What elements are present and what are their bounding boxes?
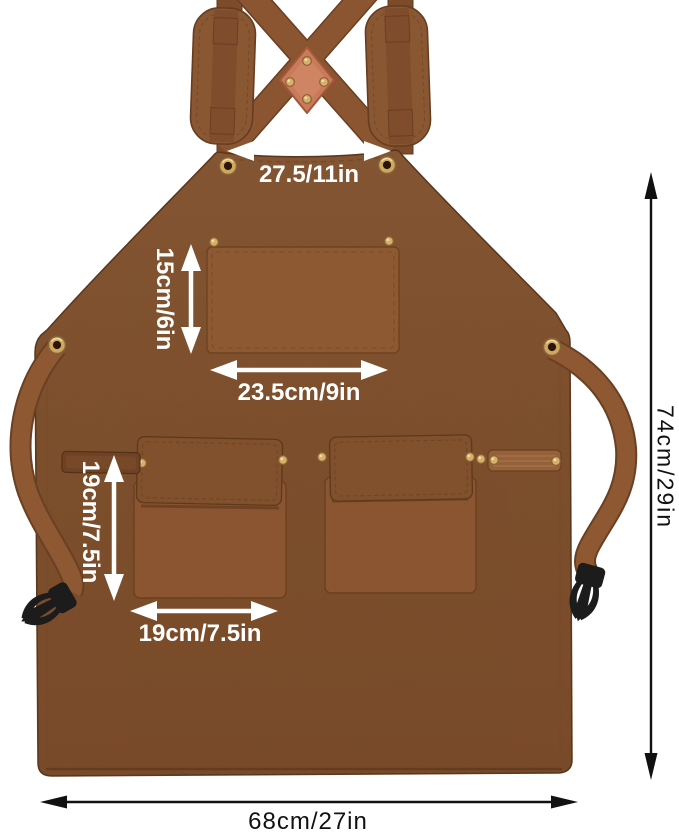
waist-pocket-right bbox=[317, 435, 486, 593]
tab-rivet bbox=[551, 456, 561, 466]
chest-pocket bbox=[207, 236, 399, 353]
waist-grommet-right bbox=[543, 338, 562, 357]
arrow-bottom-width bbox=[40, 796, 578, 809]
patch-rivet bbox=[285, 77, 295, 87]
pocket-rivet bbox=[476, 454, 486, 464]
dim-apron-length-label: 74cm/29in bbox=[652, 405, 679, 529]
waist-pocket-left bbox=[122, 437, 288, 598]
waist-pocket-left-flap bbox=[136, 437, 282, 506]
flap-shadow bbox=[141, 506, 279, 508]
tab-rivet bbox=[489, 455, 499, 465]
patch-rivet bbox=[319, 77, 329, 87]
apron-body bbox=[0, 0, 679, 835]
chest-pocket-rivet-left bbox=[209, 237, 219, 247]
dim-top-width-label: 27.5/11in bbox=[259, 161, 359, 189]
pocket-rivet bbox=[278, 455, 288, 465]
side-tab-right bbox=[488, 450, 561, 471]
waist-pocket-right-flap bbox=[329, 435, 472, 501]
dim-chest-pocket-width-label: 23.5cm/9in bbox=[238, 379, 361, 407]
apron-illustration bbox=[0, 0, 679, 835]
dim-chest-pocket-height-label: 15cm/6in bbox=[150, 248, 178, 351]
dim-waist-pocket-height-label: 19cm/7.5in bbox=[76, 461, 104, 584]
bib-grommet-right bbox=[378, 156, 397, 175]
canvas-texture bbox=[0, 0, 679, 835]
shoulder-pad-right bbox=[365, 5, 432, 147]
pocket-rivet bbox=[465, 452, 475, 462]
patch-rivet bbox=[302, 94, 312, 104]
apron-dimension-diagram: 27.5/11in 15cm/6in 23.5cm/9in 19cm/7.5in… bbox=[0, 0, 679, 835]
waist-grommet-left bbox=[48, 336, 67, 355]
dim-bottom-width-label: 68cm/27in bbox=[248, 808, 368, 836]
chest-pocket-rivet-right bbox=[384, 236, 394, 246]
bib-grommet-left bbox=[219, 157, 238, 176]
dim-waist-pocket-width-label: 19cm/7.5in bbox=[139, 620, 262, 648]
patch-rivet bbox=[302, 56, 312, 66]
shoulder-pad-left bbox=[190, 7, 257, 145]
pocket-rivet bbox=[317, 452, 327, 462]
